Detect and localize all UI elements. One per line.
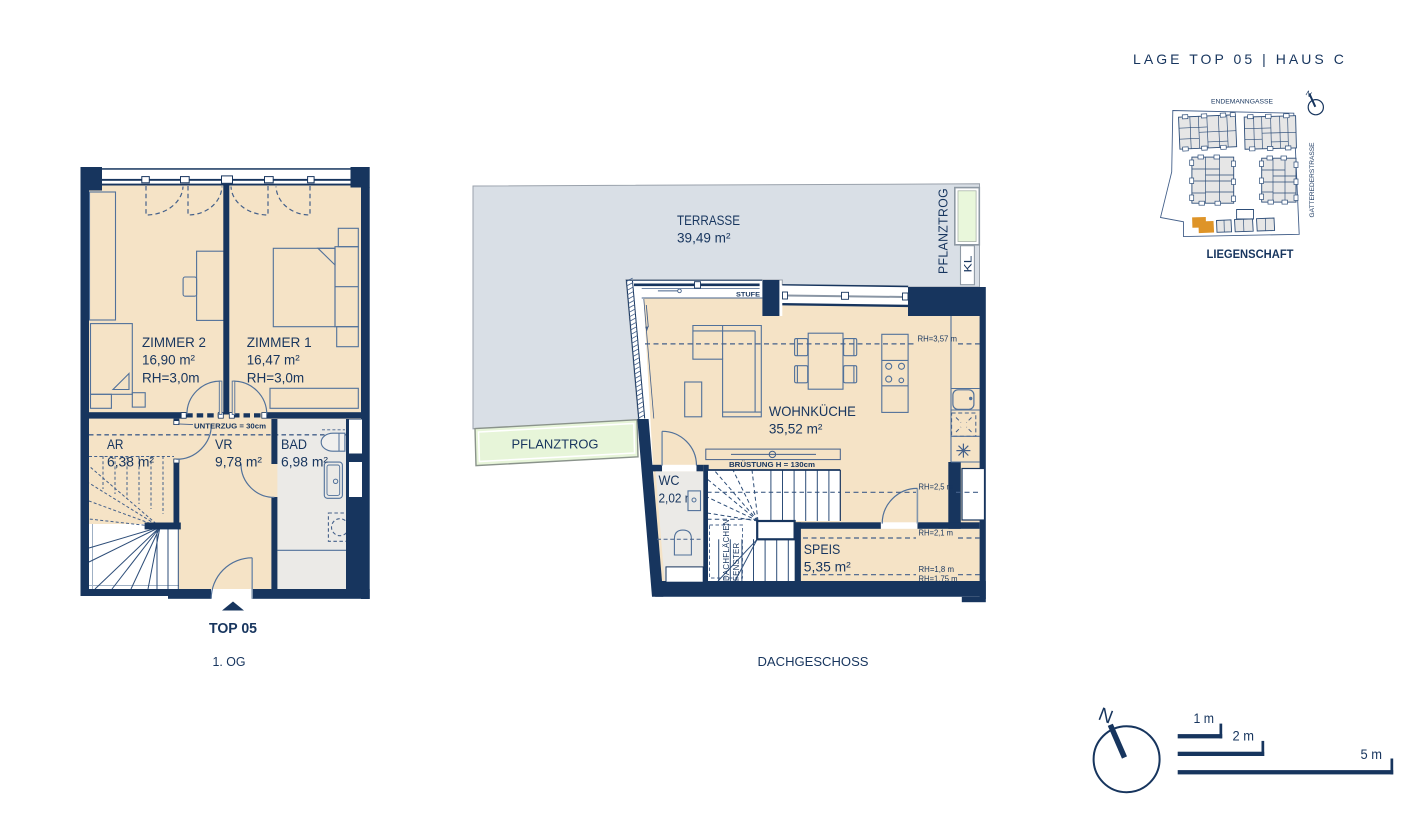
svg-text:AR: AR (107, 437, 124, 452)
svg-text:PFLANZTROG: PFLANZTROG (512, 437, 599, 452)
svg-text:35,52 m²: 35,52 m² (769, 422, 823, 437)
svg-text:VR: VR (215, 437, 233, 452)
svg-text:RH=1,8 m: RH=1,8 m (919, 565, 955, 574)
svg-text:RH=3,0m: RH=3,0m (247, 370, 305, 385)
svg-text:16,90 m²: 16,90 m² (142, 353, 195, 368)
svg-text:RH=2,1 m: RH=2,1 m (919, 529, 954, 538)
svg-text:1. OG: 1. OG (213, 654, 246, 669)
svg-text:TOP 05: TOP 05 (209, 621, 257, 637)
svg-text:RH=2,5 m: RH=2,5 m (919, 483, 954, 492)
svg-text:UNTERZUG = 30cm: UNTERZUG = 30cm (194, 422, 266, 431)
svg-text:5,35 m²: 5,35 m² (804, 560, 851, 575)
svg-text:2 m: 2 m (1233, 729, 1255, 744)
svg-text:STUFE: STUFE (736, 292, 761, 299)
svg-text:ENDEMANNGASSE: ENDEMANNGASSE (1211, 99, 1273, 106)
svg-text:39,49 m²: 39,49 m² (677, 231, 731, 246)
svg-text:9,78 m²: 9,78 m² (215, 455, 262, 470)
svg-text:1 m: 1 m (1194, 711, 1215, 726)
svg-text:TERRASSE: TERRASSE (677, 213, 740, 228)
svg-text:BRÜSTUNG H = 130cm: BRÜSTUNG H = 130cm (729, 460, 815, 469)
svg-text:LAGE TOP 05 | HAUS C: LAGE TOP 05 | HAUS C (1133, 51, 1347, 67)
svg-text:KL: KL (962, 256, 974, 273)
svg-text:RH=3,57 m: RH=3,57 m (918, 335, 958, 344)
svg-text:RH=1,75 m: RH=1,75 m (919, 575, 958, 584)
svg-text:ZIMMER 1: ZIMMER 1 (247, 335, 312, 350)
svg-text:WC: WC (659, 473, 680, 488)
svg-text:6,38 m²: 6,38 m² (107, 455, 154, 470)
svg-text:5 m: 5 m (1361, 747, 1383, 762)
svg-text:FENSTER: FENSTER (732, 542, 741, 581)
svg-text:GATTEREDERSTRASSE: GATTEREDERSTRASSE (1309, 142, 1316, 217)
svg-text:SPEIS: SPEIS (804, 542, 841, 557)
svg-text:DACHFLÄCHEN: DACHFLÄCHEN (722, 519, 731, 581)
svg-text:DACHGESCHOSS: DACHGESCHOSS (758, 654, 869, 669)
svg-text:BAD: BAD (281, 437, 307, 452)
svg-text:LIEGENSCHAFT: LIEGENSCHAFT (1207, 247, 1295, 261)
svg-text:PFLANZTROG: PFLANZTROG (936, 188, 951, 274)
svg-text:WOHNKÜCHE: WOHNKÜCHE (769, 404, 856, 419)
svg-text:ZIMMER 2: ZIMMER 2 (142, 335, 206, 350)
svg-text:6,98 m²: 6,98 m² (281, 455, 328, 470)
svg-text:16,47 m²: 16,47 m² (247, 353, 300, 368)
svg-text:RH=3,0m: RH=3,0m (142, 370, 200, 385)
